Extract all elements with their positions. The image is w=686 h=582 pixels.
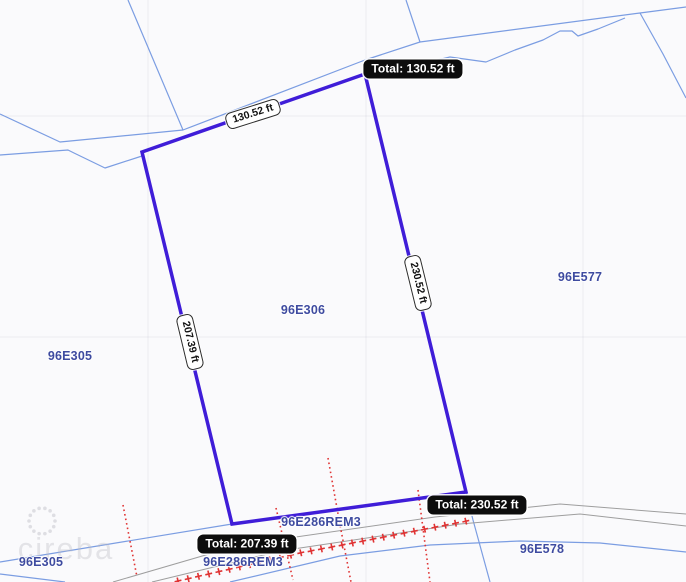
easement-dotted-lines xyxy=(123,458,430,582)
map-svg xyxy=(0,0,686,582)
selected-parcel-outline[interactable] xyxy=(142,74,466,524)
railroad-cross-icon xyxy=(410,527,418,535)
railroad-cross-icon xyxy=(379,533,387,541)
railroad-cross-icon xyxy=(400,529,408,537)
railroad-cross-icon xyxy=(431,523,439,531)
railroad-cross-icon xyxy=(215,567,223,575)
railroad-cross-icon xyxy=(266,556,274,564)
railroad-cross-icon xyxy=(451,519,459,527)
railroad-cross-icon xyxy=(276,553,284,561)
railroad-cross-icon xyxy=(205,570,213,578)
railroad-cross-icon xyxy=(256,558,264,566)
railroad-cross-icon xyxy=(235,563,243,571)
railroad-cross-icon xyxy=(245,560,253,568)
railroad-cross-icon xyxy=(184,575,192,582)
railroad-cross-icon xyxy=(390,531,398,539)
railroad-cross-icon xyxy=(194,572,202,580)
railroad-cross-icon xyxy=(307,547,315,555)
railroad-cross-icon xyxy=(441,521,449,529)
railroad-cross-icon xyxy=(225,565,233,573)
section-lines xyxy=(0,0,686,582)
watermark-logo xyxy=(27,507,57,536)
railroad-cross-icon xyxy=(317,545,325,553)
railroad-cross-icon xyxy=(297,549,305,557)
map-canvas[interactable]: cireba96E30696E57796E30596E30596E286REM3… xyxy=(0,0,686,582)
railroad-cross-icon xyxy=(174,577,182,582)
railroad-cross-icon xyxy=(420,525,428,533)
